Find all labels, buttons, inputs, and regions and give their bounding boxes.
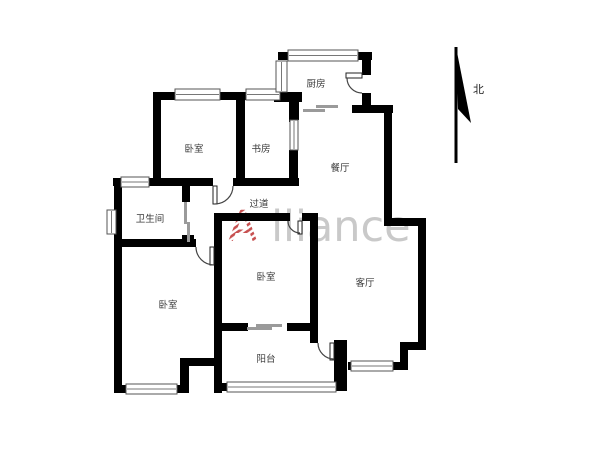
room-label-study: 书房 (251, 143, 270, 155)
window-bathroom-left (107, 210, 116, 234)
north-arrow-label: 北 (473, 83, 484, 96)
window-kitchen-top (288, 50, 358, 61)
door-bedroom-left (196, 247, 214, 265)
door-balcony (318, 343, 334, 360)
room-label-bedroom-middle: 卧室 (256, 271, 275, 283)
room-label-bathroom: 卫生间 (136, 213, 165, 225)
room-label-hallway: 过道 (249, 198, 269, 210)
window-bedroom-top (175, 89, 220, 100)
window-bathroom-top (121, 177, 149, 187)
room-label-balcony: 阳台 (256, 353, 275, 365)
north-arrow: 北 (456, 47, 484, 163)
window-kitchen-left (276, 61, 287, 92)
bedroom-balcony-slider (256, 324, 282, 327)
bedroom-balcony-slider-2 (247, 327, 272, 330)
kitchen-pass-line-2 (303, 109, 325, 112)
bathroom-sliding-door (184, 202, 187, 224)
window-study-top (246, 89, 280, 100)
floor-plan-canvas: A lliance (0, 0, 600, 450)
room-label-kitchen: 厨房 (306, 78, 325, 90)
door-kitchen (346, 73, 362, 93)
window-balcony-bottom (227, 382, 336, 392)
room-label-living: 客厅 (355, 277, 375, 289)
window-study-dining (290, 120, 298, 150)
room-label-bedroom-top: 卧室 (184, 143, 203, 155)
north-arrow-head (456, 47, 471, 123)
kitchen-pass-line (316, 105, 338, 108)
room-label-dining: 餐厅 (330, 162, 350, 174)
window-bedroom-left-bottom (126, 384, 177, 394)
window-living-bottom (351, 361, 393, 371)
room-label-bedroom-left: 卧室 (158, 299, 177, 311)
bathroom-sliding-door-2 (187, 222, 190, 242)
floor-plan: A lliance (0, 0, 600, 450)
